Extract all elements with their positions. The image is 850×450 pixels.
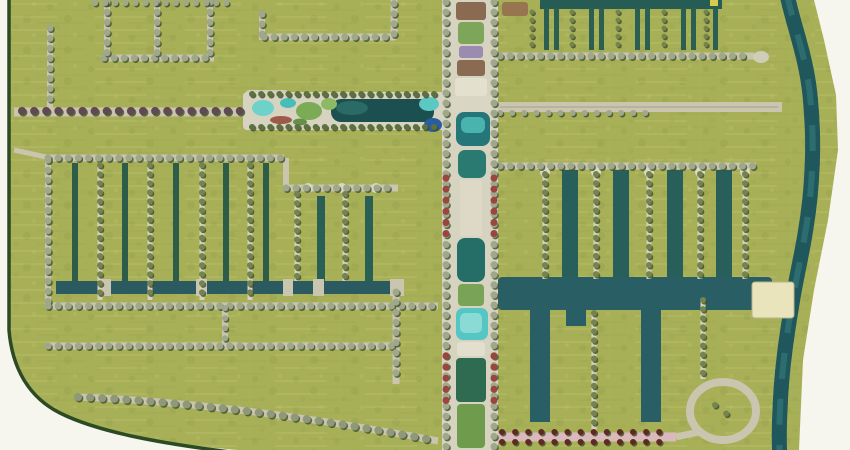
median-pond-shallow bbox=[461, 117, 485, 133]
green-canal-strip bbox=[173, 163, 179, 281]
canal-road-crossing bbox=[283, 279, 293, 296]
green-canal-strip bbox=[72, 163, 78, 281]
median-garden bbox=[459, 46, 483, 58]
park-pool bbox=[280, 98, 296, 108]
green-canal-strip bbox=[365, 196, 373, 281]
hedge-strip bbox=[645, 8, 650, 50]
median-entry-cluster bbox=[502, 2, 528, 16]
park-terrace bbox=[270, 116, 292, 124]
canal-finger bbox=[562, 170, 578, 278]
green-canal-strip bbox=[223, 163, 229, 281]
canal-road-crossing bbox=[313, 279, 324, 296]
road bbox=[676, 432, 699, 437]
canal-finger-south bbox=[530, 308, 550, 422]
median-lawn bbox=[458, 22, 484, 44]
master-plan-canvas bbox=[0, 0, 850, 450]
median-court bbox=[455, 78, 487, 96]
median-pond bbox=[457, 238, 485, 282]
median-court bbox=[457, 342, 485, 356]
hedge-strip bbox=[544, 8, 549, 50]
hedge-header-band bbox=[540, 0, 722, 9]
median-plaza bbox=[457, 60, 485, 76]
hedge-strip bbox=[691, 8, 696, 50]
hedge-strip bbox=[589, 8, 594, 50]
park-lawn bbox=[293, 119, 307, 126]
junction-pool bbox=[419, 97, 439, 111]
canal-finger-south bbox=[641, 308, 661, 422]
flower-bed bbox=[710, 0, 718, 6]
green-canal-strip bbox=[122, 163, 128, 281]
park-lake-shallow bbox=[336, 101, 368, 115]
canal-finger bbox=[667, 170, 683, 278]
median-lawn bbox=[457, 404, 485, 448]
canal-finger bbox=[716, 170, 732, 278]
median-grove bbox=[456, 358, 486, 402]
clubhouse-plot bbox=[752, 282, 794, 318]
hedge-strip bbox=[599, 8, 604, 50]
hedge-strip bbox=[681, 8, 686, 50]
park-lawn bbox=[296, 102, 322, 120]
median-plaza bbox=[456, 2, 486, 20]
hedge-strip bbox=[713, 8, 718, 50]
median-pool-inner bbox=[460, 313, 482, 333]
hedge-strip bbox=[635, 8, 640, 50]
site-plan-map bbox=[0, 0, 850, 450]
median-junction bbox=[452, 96, 492, 112]
hedge-strip bbox=[554, 8, 559, 50]
culdesac-bulb bbox=[753, 51, 769, 63]
park-pool bbox=[252, 100, 274, 116]
green-canal-strip bbox=[317, 196, 325, 281]
canal-finger-south bbox=[566, 308, 586, 326]
canal-finger bbox=[613, 170, 629, 278]
park-lawn bbox=[321, 98, 337, 110]
median-promenade bbox=[460, 180, 482, 236]
green-canal-strip bbox=[263, 163, 269, 281]
median-pond bbox=[458, 150, 486, 178]
lake-band-east bbox=[498, 277, 772, 310]
median-lawn bbox=[458, 284, 484, 306]
